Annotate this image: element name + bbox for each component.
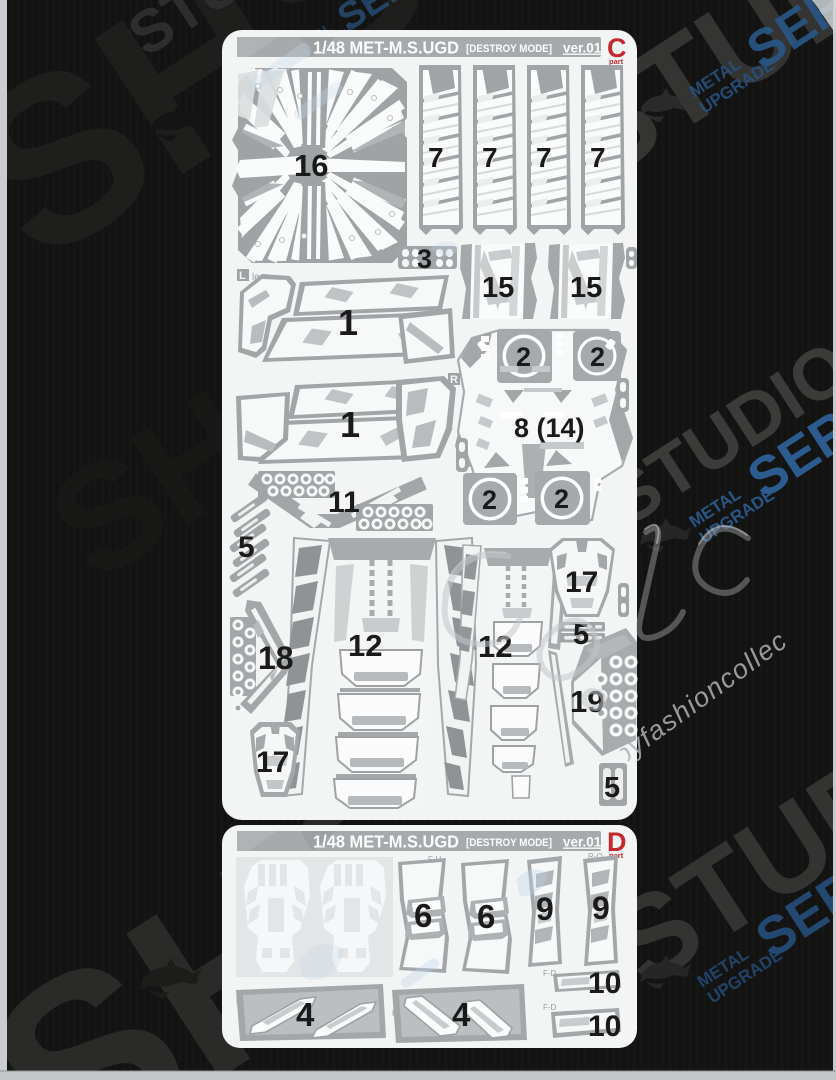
svg-text:2: 2 — [482, 485, 497, 515]
svg-text:15: 15 — [482, 272, 514, 304]
svg-text:2: 2 — [590, 342, 605, 372]
svg-text:part: part — [609, 57, 624, 66]
svg-text:11: 11 — [328, 486, 360, 519]
svg-text:L: L — [239, 270, 246, 282]
svg-text:F-D: F-D — [543, 1003, 557, 1012]
svg-text:6: 6 — [477, 898, 495, 935]
svg-text:10: 10 — [588, 1010, 621, 1043]
svg-text:ver.01: ver.01 — [563, 835, 602, 850]
svg-text:18: 18 — [258, 640, 294, 676]
svg-text:[DESTROY MODE]: [DESTROY MODE] — [466, 837, 552, 849]
svg-text:17: 17 — [256, 746, 289, 779]
svg-text:8 (14): 8 (14) — [514, 413, 585, 443]
svg-text:4: 4 — [452, 996, 471, 1033]
svg-text:[DESTROY MODE]: [DESTROY MODE] — [466, 43, 552, 55]
svg-text:17: 17 — [565, 566, 598, 599]
svg-text:1/48 MET-M.S.UGD: 1/48 MET-M.S.UGD — [313, 832, 459, 852]
svg-text:1/48 MET-M.S.UGD: 1/48 MET-M.S.UGD — [313, 38, 459, 58]
svg-text:5: 5 — [604, 772, 620, 804]
svg-text:10: 10 — [588, 967, 621, 1000]
svg-text:ver.01: ver.01 — [563, 41, 602, 56]
svg-text:1: 1 — [338, 302, 358, 343]
svg-text:9: 9 — [536, 891, 554, 927]
svg-text:1: 1 — [340, 404, 360, 445]
svg-text:12: 12 — [348, 628, 382, 663]
svg-text:3: 3 — [417, 244, 432, 274]
svg-text:6: 6 — [414, 897, 432, 934]
svg-text:15: 15 — [570, 272, 602, 304]
svg-text:2: 2 — [554, 484, 569, 514]
svg-text:16: 16 — [294, 148, 328, 183]
svg-text:4: 4 — [296, 996, 315, 1033]
svg-text:2: 2 — [516, 342, 531, 372]
svg-text:9: 9 — [592, 890, 610, 926]
svg-text:5: 5 — [238, 531, 255, 564]
